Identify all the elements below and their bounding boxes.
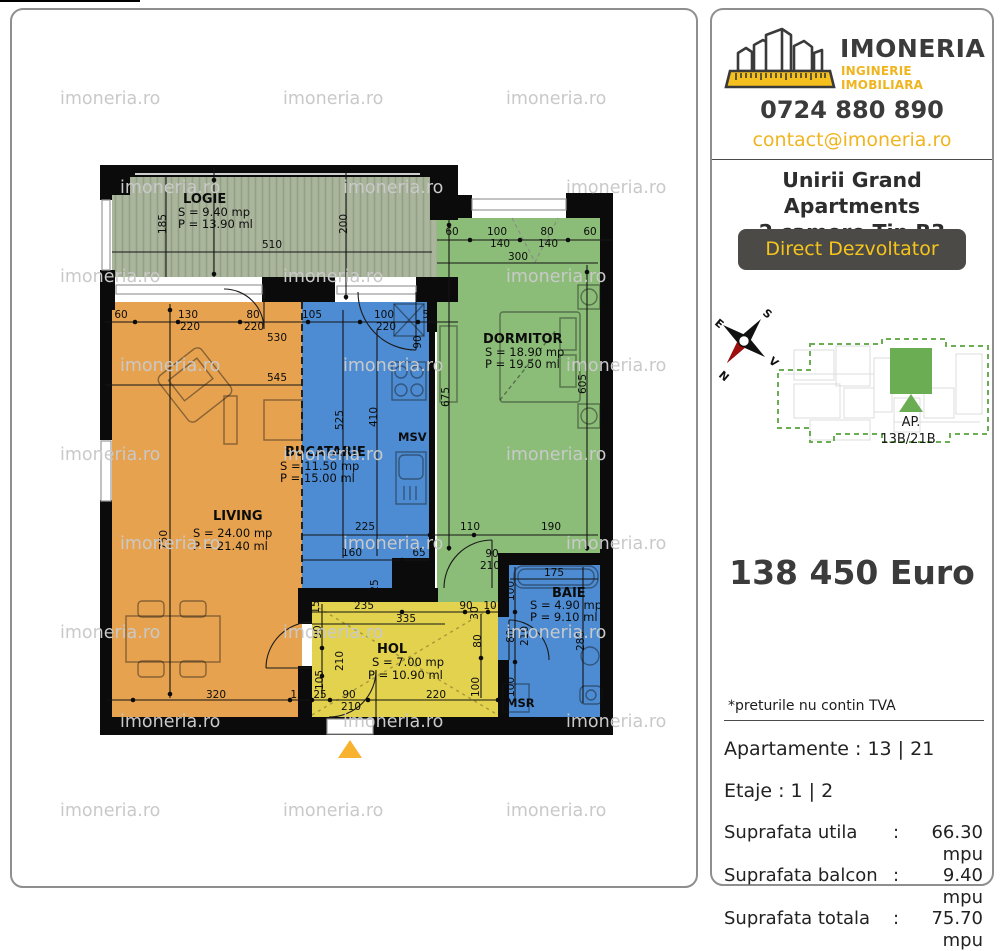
area-row-totala: Suprafata totala : 75.70 mpu: [724, 908, 983, 951]
tva-note: *preturile nu contin TVA: [728, 698, 896, 714]
floors-row: Etaje : 1 | 2: [724, 780, 833, 802]
brand-name: IMONERIA: [840, 34, 985, 63]
compass-e: E: [712, 316, 726, 331]
compass-icon: S E V N: [706, 298, 782, 386]
apartment-code-line2: 13B/21B: [880, 432, 935, 447]
floorplan-panel: [10, 8, 698, 888]
screenshot-edge-artifact: [0, 0, 140, 2]
areas-table: Suprafata utila : 66.30 mpu Suprafata ba…: [724, 822, 983, 951]
compass-s: S: [760, 306, 774, 321]
imoneria-logo-icon: [724, 20, 836, 92]
phone-number: 0724 880 890: [712, 96, 992, 124]
apartment-code-line1: AP.: [902, 415, 921, 430]
area-row-utila: Suprafata utila : 66.30 mpu: [724, 822, 983, 865]
area-row-balcon: Suprafata balcon : 9.40 mpu: [724, 865, 983, 908]
building-minimap: AP. 13B/21B: [774, 328, 992, 458]
price: 138 450 Euro: [712, 553, 992, 592]
divider: [724, 720, 984, 721]
sidebar: IMONERIA INGINERIE IMOBILIARA 0724 880 8…: [710, 8, 994, 886]
apartment-highlight: [890, 348, 932, 394]
brand-tagline: INGINERIE IMOBILIARA: [841, 64, 992, 92]
divider: [712, 159, 992, 160]
apartments-row: Apartamente : 13 | 21: [724, 738, 934, 760]
email-link[interactable]: contact@imoneria.ro: [712, 129, 992, 151]
compass-n: N: [716, 368, 731, 384]
direct-dezvoltator-badge: Direct Dezvoltator: [738, 229, 966, 270]
apartment-pointer-icon: [899, 394, 923, 412]
